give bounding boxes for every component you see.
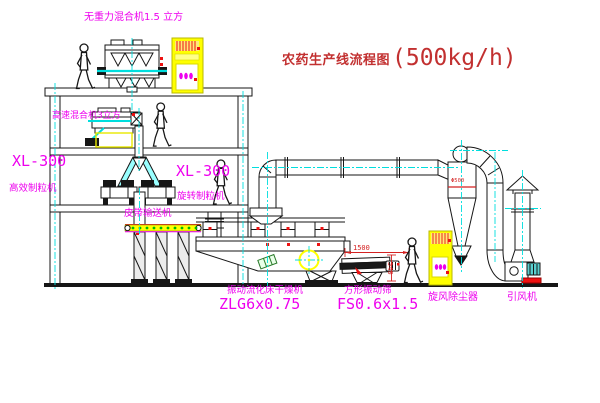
label-granulator-right-model: XL-300 (176, 164, 230, 179)
label-zero-gravity-mixer: 无重力混合机1.5 立方 (84, 13, 183, 23)
process-flow-diagram: 农药生产线流程图 (500kg/h) 无重力混合机1.5 立方 高速混合机3立方… (0, 0, 600, 403)
label-screen-model: FS0.6x1.5 (337, 297, 418, 312)
control-cabinet-top (172, 38, 203, 93)
label-high-speed-mixer: 高速混合机3立方 (52, 112, 121, 121)
induced-draft-fan-drawing (505, 262, 541, 283)
label-fan: 引风机 (507, 293, 537, 303)
belt-conveyor-drawing (125, 225, 201, 284)
label-granulator-left-name: 高效制粒机 (9, 184, 57, 194)
control-cabinet-right (429, 231, 452, 285)
label-granulator-right-name: 旋转制粒机 (177, 192, 225, 202)
dimension-cyclone-diameter: Φ500 (451, 179, 464, 185)
label-dryer-model: ZLG6x0.75 (219, 297, 300, 312)
person-figure (405, 238, 424, 283)
label-cyclone: 旋风除尘器 (428, 293, 478, 303)
title-text: 农药生产线流程图 (282, 49, 390, 71)
person-figure (77, 44, 96, 89)
label-granulator-left-model: XL-300 (12, 154, 66, 169)
drawing-title: 农药生产线流程图 (500kg/h) (282, 45, 517, 71)
label-belt-conveyor: 皮带输送机 (124, 209, 172, 219)
dimension-screen-length: 1500 (353, 245, 370, 252)
dimension-screen-height: 540 (386, 262, 393, 275)
title-capacity: (500kg/h) (392, 45, 517, 71)
person-figure (153, 103, 171, 146)
